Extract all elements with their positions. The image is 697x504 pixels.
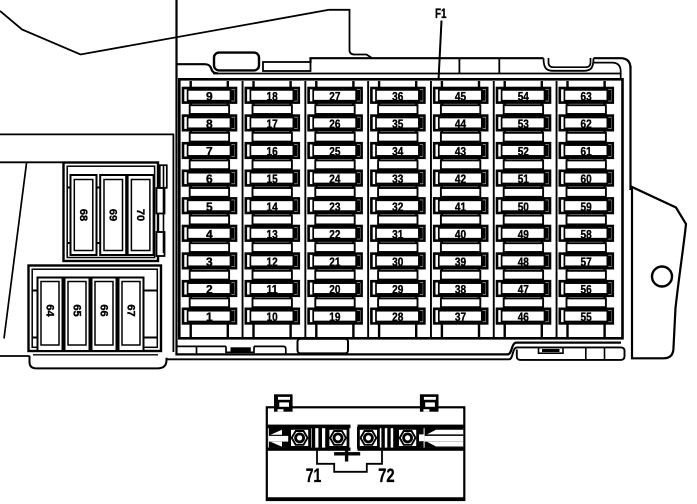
svg-text:56: 56 (581, 283, 592, 297)
svg-text:25: 25 (329, 145, 340, 159)
svg-text:22: 22 (329, 227, 340, 241)
svg-text:20: 20 (329, 283, 340, 297)
svg-text:12: 12 (267, 255, 278, 269)
svg-text:19: 19 (329, 310, 340, 324)
svg-text:13: 13 (267, 227, 278, 241)
svg-text:59: 59 (581, 200, 592, 214)
svg-text:33: 33 (392, 172, 403, 186)
svg-text:51: 51 (518, 172, 529, 186)
svg-text:57: 57 (581, 255, 592, 269)
svg-text:34: 34 (392, 145, 403, 159)
svg-text:37: 37 (455, 310, 466, 324)
svg-text:69: 69 (107, 209, 119, 221)
svg-text:50: 50 (518, 200, 529, 214)
svg-text:3: 3 (206, 255, 213, 269)
svg-text:42: 42 (455, 172, 466, 186)
svg-text:41: 41 (455, 200, 466, 214)
svg-text:48: 48 (518, 255, 529, 269)
svg-text:72: 72 (378, 466, 395, 487)
svg-text:10: 10 (267, 310, 278, 324)
svg-text:5: 5 (206, 200, 213, 214)
svg-text:47: 47 (518, 283, 529, 297)
svg-text:24: 24 (329, 172, 340, 186)
svg-text:46: 46 (518, 310, 529, 324)
svg-text:4: 4 (206, 227, 213, 241)
svg-text:11: 11 (267, 283, 278, 297)
svg-text:23: 23 (329, 200, 340, 214)
svg-text:52: 52 (518, 145, 529, 159)
svg-text:32: 32 (392, 200, 403, 214)
svg-text:38: 38 (455, 283, 466, 297)
svg-text:67: 67 (124, 304, 136, 316)
svg-text:16: 16 (267, 145, 278, 159)
svg-text:9: 9 (206, 89, 213, 103)
svg-text:68: 68 (77, 209, 89, 221)
svg-text:55: 55 (581, 310, 592, 324)
svg-text:53: 53 (518, 117, 529, 131)
svg-text:70: 70 (134, 209, 146, 221)
svg-text:65: 65 (70, 304, 82, 316)
svg-text:44: 44 (455, 117, 466, 131)
svg-text:66: 66 (97, 304, 109, 316)
svg-text:60: 60 (581, 172, 592, 186)
svg-text:21: 21 (329, 255, 340, 269)
svg-text:6: 6 (206, 172, 213, 186)
svg-text:7: 7 (206, 145, 213, 159)
svg-text:63: 63 (581, 89, 592, 103)
svg-text:36: 36 (392, 89, 403, 103)
svg-text:39: 39 (455, 255, 466, 269)
svg-text:64: 64 (43, 304, 55, 317)
svg-text:54: 54 (518, 89, 529, 103)
svg-text:2: 2 (206, 283, 213, 297)
svg-text:18: 18 (267, 89, 278, 103)
svg-text:43: 43 (455, 145, 466, 159)
svg-text:30: 30 (392, 255, 403, 269)
svg-text:15: 15 (267, 172, 278, 186)
svg-text:61: 61 (581, 145, 592, 159)
svg-text:1: 1 (206, 310, 213, 324)
svg-text:35: 35 (392, 117, 403, 131)
svg-text:29: 29 (392, 283, 403, 297)
svg-text:28: 28 (392, 310, 403, 324)
svg-text:14: 14 (267, 200, 278, 214)
svg-text:31: 31 (392, 227, 403, 241)
svg-text:27: 27 (329, 89, 340, 103)
svg-text:8: 8 (206, 117, 213, 131)
svg-text:62: 62 (581, 117, 592, 131)
svg-text:45: 45 (455, 89, 466, 103)
svg-text:49: 49 (518, 227, 529, 241)
svg-text:26: 26 (329, 117, 340, 131)
svg-text:40: 40 (455, 227, 466, 241)
svg-text:17: 17 (267, 117, 278, 131)
svg-text:58: 58 (581, 227, 592, 241)
svg-text:71: 71 (306, 466, 322, 487)
svg-text:F1: F1 (435, 6, 447, 21)
